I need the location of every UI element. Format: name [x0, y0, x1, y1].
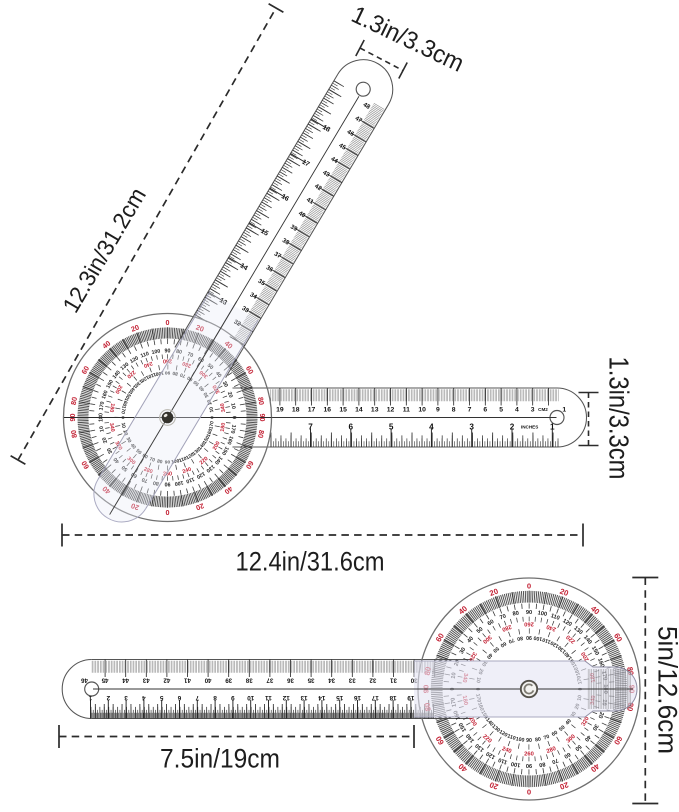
svg-text:10: 10 [229, 403, 236, 410]
svg-text:INCHES: INCHES [521, 424, 538, 429]
svg-text:41: 41 [184, 677, 191, 684]
svg-text:90: 90 [165, 481, 171, 487]
svg-text:80: 80 [539, 760, 546, 767]
svg-text:16: 16 [354, 694, 362, 701]
svg-text:32: 32 [369, 677, 376, 684]
svg-text:42: 42 [163, 677, 170, 684]
svg-text:31: 31 [390, 677, 397, 684]
svg-text:12: 12 [387, 407, 395, 414]
svg-text:4: 4 [515, 407, 519, 414]
svg-text:2: 2 [106, 694, 110, 701]
svg-text:80: 80 [256, 396, 266, 405]
svg-text:1: 1 [562, 407, 566, 414]
svg-text:35: 35 [307, 677, 314, 684]
svg-text:19: 19 [407, 694, 415, 701]
svg-text:6: 6 [349, 423, 354, 432]
svg-text:80: 80 [69, 429, 79, 438]
svg-text:45: 45 [101, 677, 108, 684]
svg-text:15: 15 [339, 407, 347, 414]
svg-text:3: 3 [469, 423, 474, 432]
svg-text:44: 44 [122, 677, 129, 684]
svg-text:90: 90 [526, 610, 532, 616]
svg-text:17: 17 [371, 694, 379, 701]
svg-text:80: 80 [516, 635, 523, 642]
svg-text:3: 3 [531, 407, 535, 414]
svg-text:3: 3 [124, 694, 128, 701]
svg-text:7: 7 [308, 423, 313, 432]
svg-text:16: 16 [324, 407, 332, 414]
svg-text:90: 90 [526, 634, 532, 640]
svg-text:8: 8 [213, 694, 217, 701]
svg-text:260: 260 [524, 621, 534, 627]
svg-text:9: 9 [436, 407, 440, 414]
svg-text:13: 13 [300, 694, 308, 701]
svg-text:8: 8 [452, 407, 456, 414]
svg-text:5: 5 [389, 423, 394, 432]
svg-text:9: 9 [231, 694, 235, 701]
svg-text:80: 80 [512, 611, 519, 618]
svg-text:0: 0 [166, 508, 170, 517]
svg-text:40: 40 [204, 677, 211, 684]
svg-text:5: 5 [499, 407, 503, 414]
svg-text:0: 0 [527, 787, 531, 796]
svg-text:4: 4 [142, 694, 146, 701]
svg-text:4: 4 [429, 423, 434, 432]
svg-text:37: 37 [266, 677, 273, 684]
svg-text:13: 13 [371, 407, 379, 414]
svg-text:14: 14 [318, 694, 326, 701]
svg-text:11: 11 [265, 694, 272, 701]
svg-text:12.4in/31.6cm: 12.4in/31.6cm [236, 546, 385, 576]
svg-text:10: 10 [247, 694, 255, 701]
svg-text:5: 5 [159, 694, 163, 701]
svg-text:0: 0 [527, 582, 531, 591]
svg-text:7.5in/19cm: 7.5in/19cm [160, 743, 280, 773]
svg-text:80: 80 [535, 736, 542, 743]
svg-text:1: 1 [550, 423, 555, 432]
svg-text:18: 18 [389, 694, 397, 701]
svg-text:6: 6 [483, 407, 487, 414]
svg-text:1.3in/3.3cm: 1.3in/3.3cm [603, 357, 634, 480]
svg-text:80: 80 [69, 396, 79, 405]
svg-text:80: 80 [256, 429, 266, 438]
svg-text:33: 33 [348, 677, 355, 684]
svg-text:90: 90 [526, 762, 532, 768]
svg-text:7: 7 [195, 694, 199, 701]
svg-text:11: 11 [403, 407, 410, 414]
svg-text:19: 19 [276, 407, 284, 414]
svg-text:10: 10 [99, 425, 106, 432]
svg-text:6: 6 [177, 694, 181, 701]
svg-text:5in/12.6cm: 5in/12.6cm [653, 626, 679, 754]
svg-text:1: 1 [88, 694, 92, 701]
svg-text:39: 39 [225, 677, 232, 684]
svg-text:90: 90 [165, 348, 171, 354]
svg-text:7: 7 [468, 407, 472, 414]
svg-text:2: 2 [510, 423, 515, 432]
svg-text:12: 12 [282, 694, 290, 701]
svg-text:43: 43 [142, 677, 149, 684]
svg-text:34: 34 [328, 677, 335, 684]
svg-text:15: 15 [336, 694, 344, 701]
svg-text:14: 14 [355, 407, 363, 414]
svg-text:260: 260 [524, 751, 534, 757]
svg-text:0: 0 [166, 318, 170, 327]
svg-text:90: 90 [526, 738, 532, 744]
svg-text:CM2: CM2 [538, 407, 548, 412]
svg-text:17: 17 [308, 407, 316, 414]
svg-text:46: 46 [81, 677, 88, 684]
svg-text:18: 18 [292, 407, 300, 414]
svg-text:10: 10 [418, 407, 426, 414]
svg-text:38: 38 [245, 677, 252, 684]
svg-text:36: 36 [287, 677, 294, 684]
